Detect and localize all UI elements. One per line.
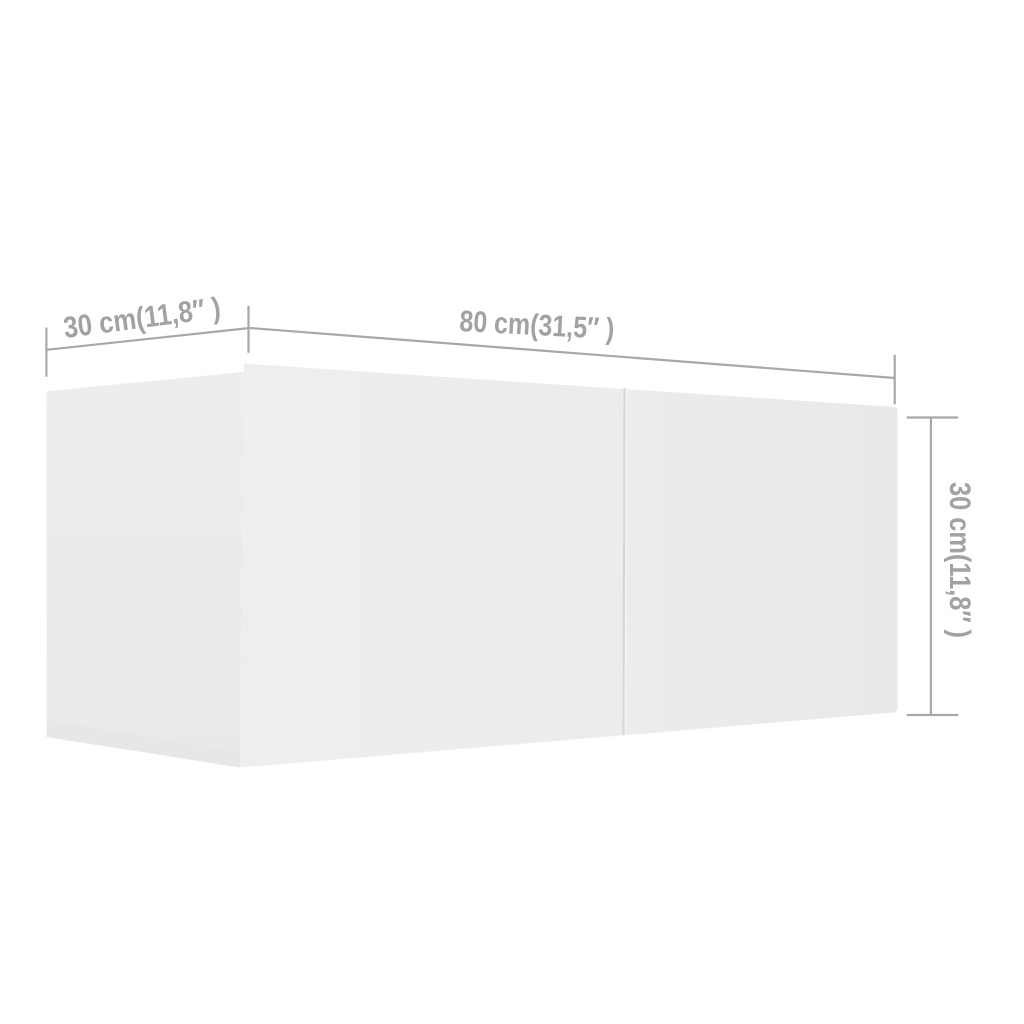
svg-text:30 cm(11,8″ ): 30 cm(11,8″ ) [943,482,976,638]
svg-text:30 cm(11,8″ ): 30 cm(11,8″ ) [62,292,223,345]
svg-text:80 cm(31,5″ ): 80 cm(31,5″ ) [459,305,616,346]
